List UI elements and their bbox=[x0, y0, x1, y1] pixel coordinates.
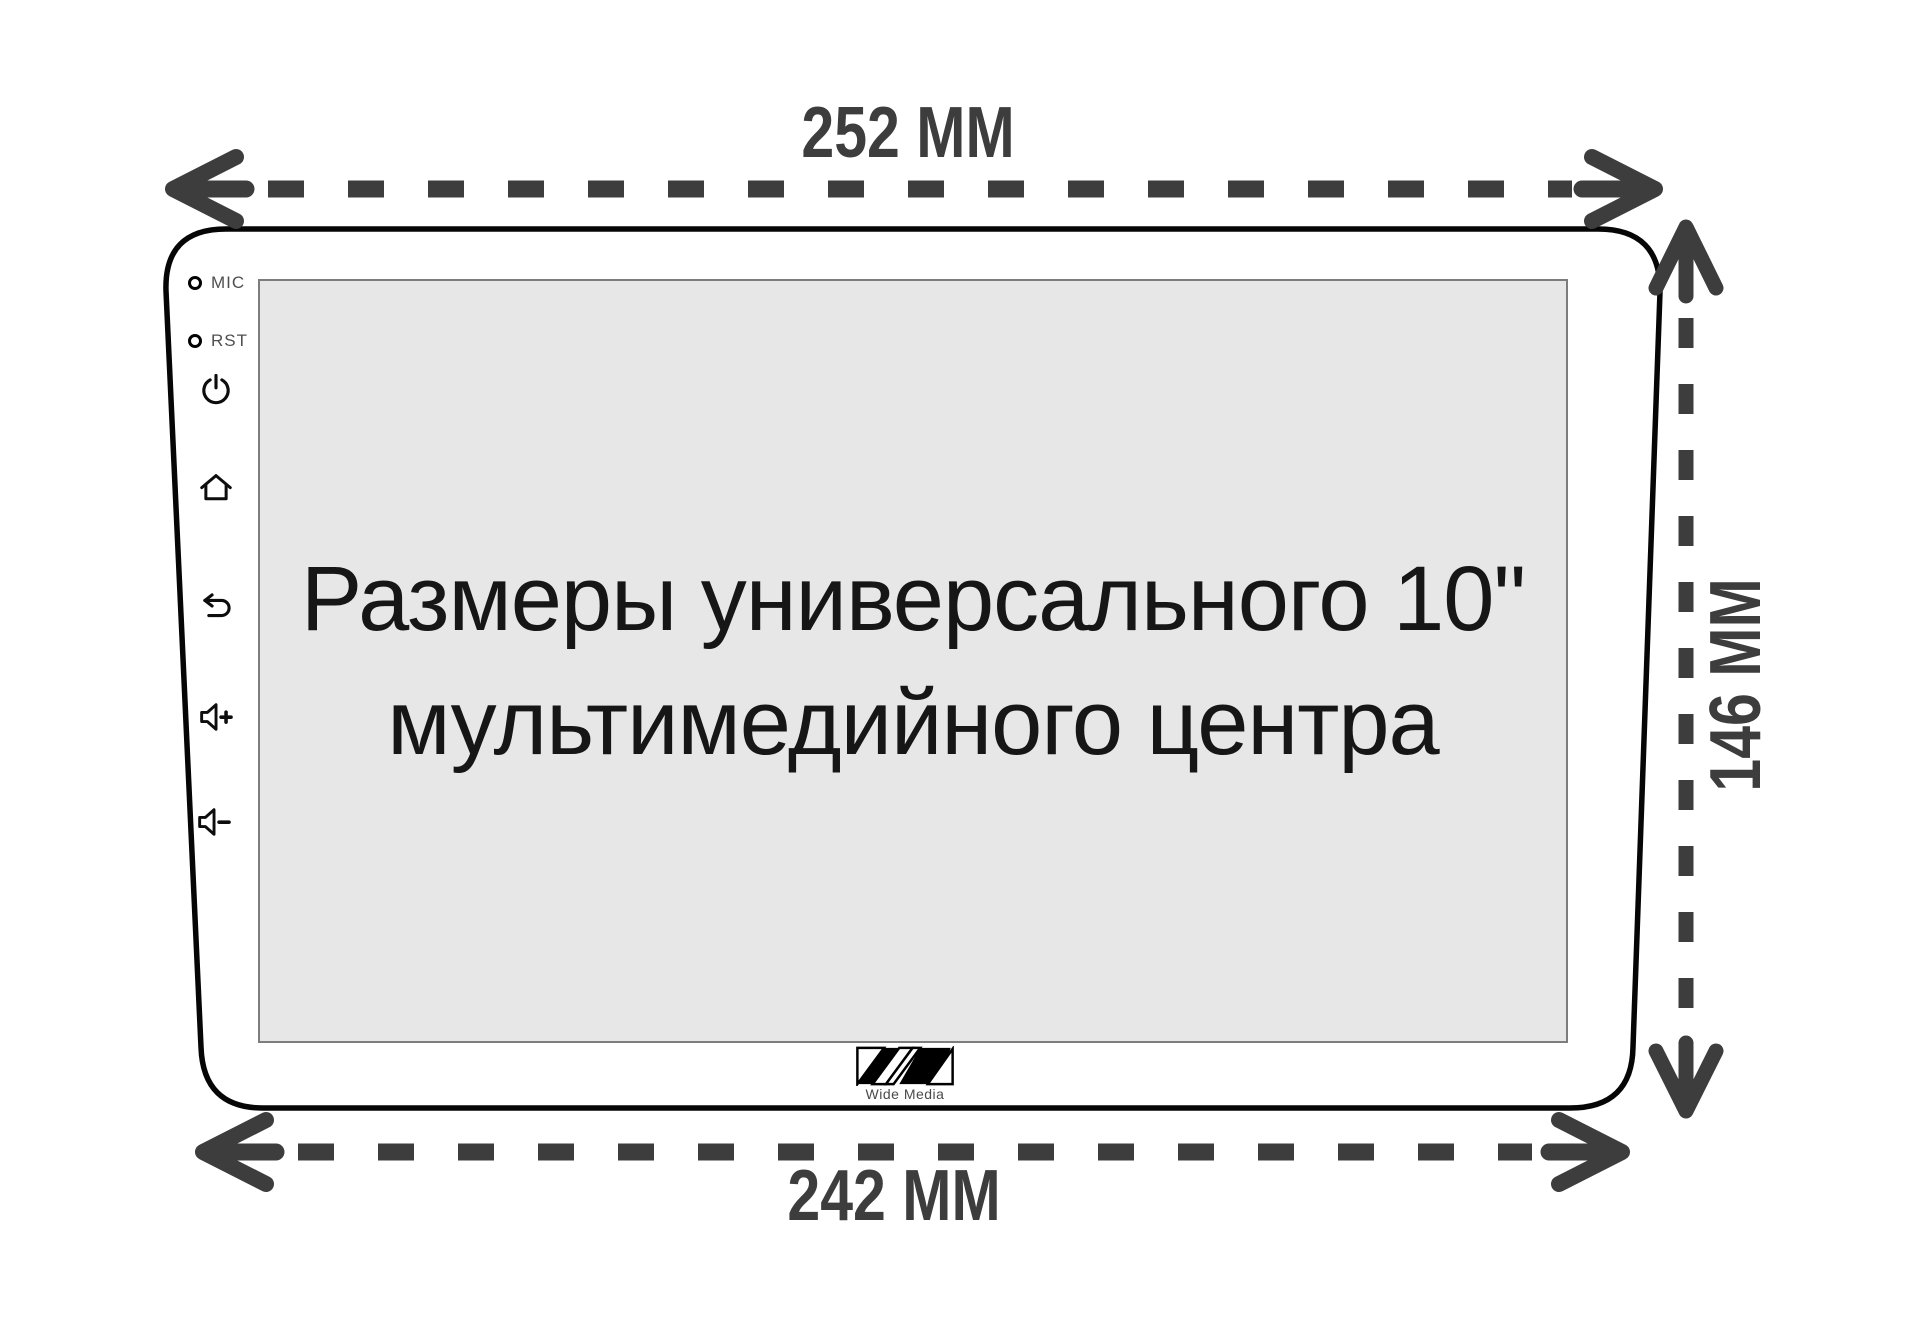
volume-up-icon bbox=[196, 699, 238, 735]
mic-led-icon bbox=[188, 276, 202, 290]
wide-media-mark-icon bbox=[853, 1046, 957, 1086]
rst-led-icon bbox=[188, 334, 202, 348]
rst-label: RST bbox=[211, 331, 248, 351]
volume-down-icon bbox=[194, 804, 236, 840]
brand-logo-text: Wide Media bbox=[866, 1087, 945, 1102]
brand-logo: Wide Media bbox=[852, 1046, 958, 1102]
bottom-dimension-label: 242 MM bbox=[730, 1160, 1058, 1232]
power-icon bbox=[198, 371, 234, 407]
screen-caption-line2: мультимедийного центра bbox=[387, 661, 1438, 785]
dimension-diagram: 252 MM 242 MM 146 MM Размеры универсальн… bbox=[0, 0, 1920, 1333]
right-dimension-label: 146 MM bbox=[1700, 521, 1772, 849]
mic-label: MIC bbox=[211, 273, 245, 293]
home-icon bbox=[197, 468, 235, 506]
device-screen: Размеры универсального 10" мультимедийно… bbox=[258, 279, 1568, 1043]
mic-row: MIC bbox=[188, 273, 245, 293]
back-icon bbox=[196, 589, 236, 625]
top-dimension-label: 252 MM bbox=[744, 97, 1072, 169]
rst-row: RST bbox=[188, 331, 248, 351]
screen-caption-line1: Размеры универсального 10" bbox=[301, 537, 1525, 661]
